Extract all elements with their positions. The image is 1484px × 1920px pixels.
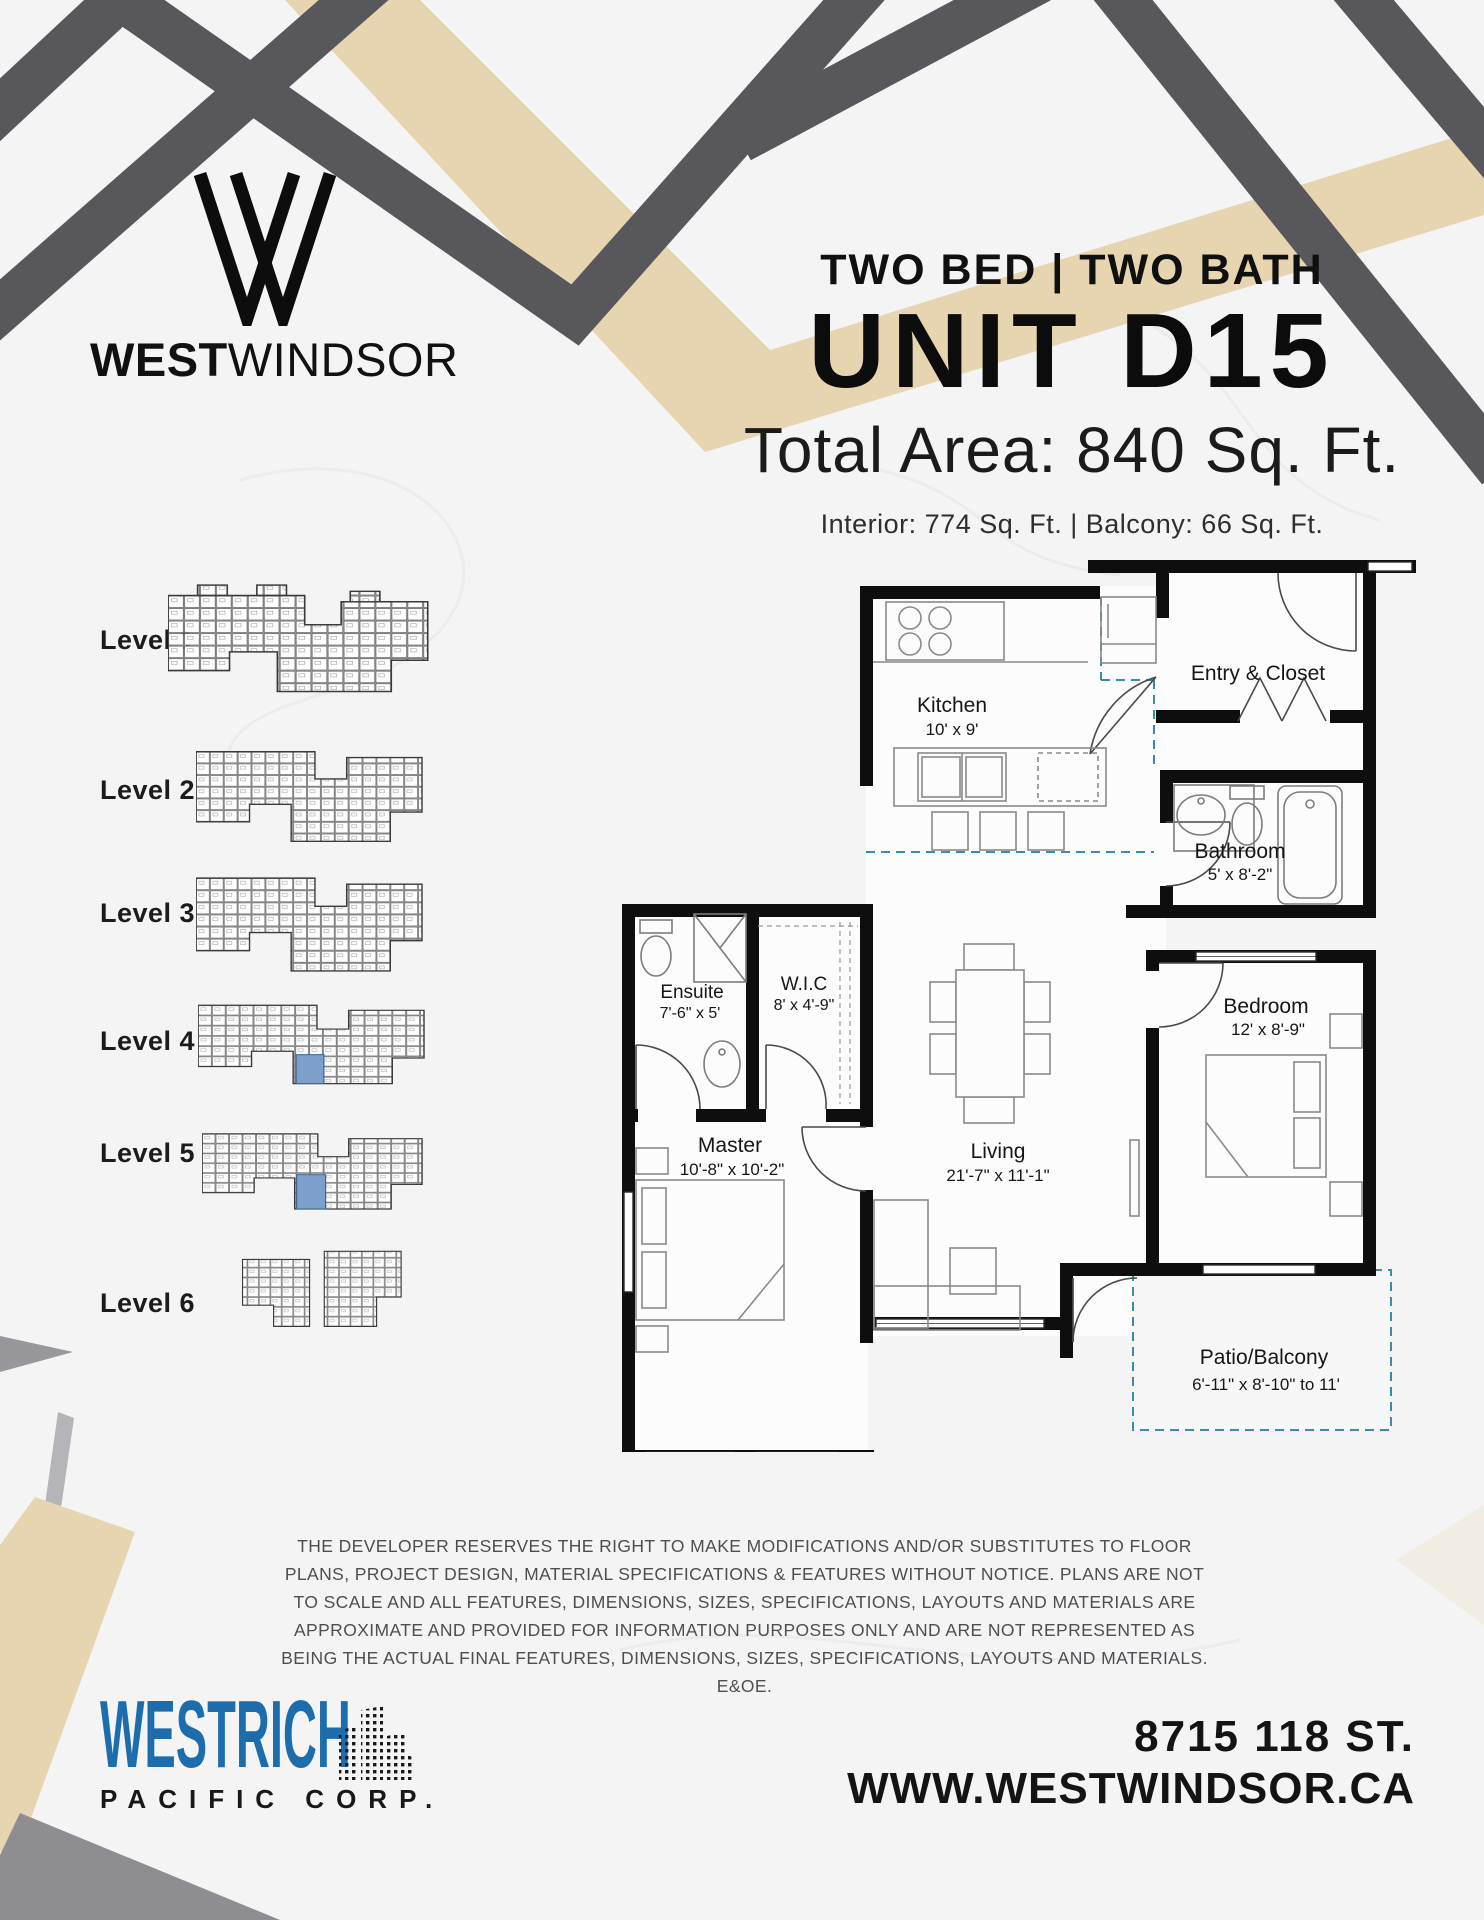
brand-wordmark: WESTWINDSOR — [90, 332, 440, 387]
westwindsor-logo: WESTWINDSOR — [90, 168, 440, 387]
bathroom-dims: 5' x 8'-2" — [1208, 865, 1273, 884]
level-1-floorplate — [168, 583, 430, 703]
bedroom-dims: 12' x 8'-9" — [1231, 1020, 1305, 1039]
westrich-name: WESTRICH — [100, 1692, 267, 1778]
kitchen-label: Kitchen — [917, 694, 987, 717]
footer-address-block: 8715 118 ST. WWW.WESTWINDSOR.CA — [847, 1712, 1415, 1814]
level-3-label: Level 3 — [100, 898, 195, 929]
level-5-floorplate — [202, 1124, 424, 1218]
ensuite-dims: 7'-6" x 5' — [660, 1005, 721, 1022]
level-5-label: Level 5 — [100, 1138, 195, 1169]
level-3-floorplate — [196, 866, 424, 982]
kitchen-dims: 10' x 9' — [926, 720, 979, 739]
unit-floor-plan: Kitchen 10' x 9' Entry & Closet Bathroom… — [618, 552, 1418, 1452]
westrich-building-icon — [337, 1706, 415, 1780]
entry-label: Entry & Closet — [1191, 662, 1325, 685]
street-address: 8715 118 ST. — [847, 1712, 1415, 1762]
patio-label: Patio/Balcony — [1200, 1346, 1329, 1369]
deco-gray-corner — [0, 1813, 280, 1920]
website-url: WWW.WESTWINDSOR.CA — [847, 1764, 1415, 1814]
bathroom-label: Bathroom — [1194, 840, 1285, 863]
living-dims: 21'-7" x 11'-1" — [946, 1166, 1049, 1185]
wic-dims: 8' x 4'-9" — [774, 997, 835, 1014]
level-4-floorplate — [198, 995, 426, 1093]
level-6-floorplate — [236, 1248, 424, 1342]
brand-word-windsor: WINDSOR — [228, 333, 459, 386]
master-dims: 10'-8" x 10'-2" — [680, 1160, 785, 1179]
deco-gray-chevron — [0, 1336, 73, 1372]
level-4-label: Level 4 — [100, 1026, 195, 1057]
unit-title: UNIT D15 — [742, 297, 1402, 405]
master-label: Master — [698, 1134, 762, 1157]
bedroom-label: Bedroom — [1223, 995, 1308, 1018]
deco-thin-stripe — [2, 1412, 74, 1820]
level-2-label: Level 2 — [100, 775, 195, 806]
patio-dims: 6'-11" x 8'-10" to 11' — [1192, 1375, 1340, 1394]
title-block: TWO BED | TWO BATH UNIT D15 Total Area: … — [742, 246, 1402, 540]
unit-subtitle: TWO BED | TWO BATH — [742, 246, 1402, 295]
level-4-unit-highlight — [296, 1055, 324, 1084]
brand-word-west: WEST — [90, 333, 228, 386]
total-area: Total Area: 840 Sq. Ft. — [742, 413, 1402, 487]
ensuite-label: Ensuite — [660, 982, 723, 1003]
w-monogram-icon — [190, 168, 340, 326]
living-label: Living — [971, 1140, 1026, 1163]
level-6-label: Level 6 — [100, 1288, 195, 1319]
interior-balcony-areas: Interior: 774 Sq. Ft. | Balcony: 66 Sq. … — [742, 509, 1402, 540]
level-2-floorplate — [196, 740, 424, 852]
level-5-unit-highlight — [297, 1175, 326, 1209]
disclaimer-text: THE DEVELOPER RESERVES THE RIGHT TO MAKE… — [272, 1532, 1217, 1700]
westrich-subtitle: PACIFIC CORP. — [100, 1784, 440, 1815]
wic-label: W.I.C — [781, 974, 827, 995]
